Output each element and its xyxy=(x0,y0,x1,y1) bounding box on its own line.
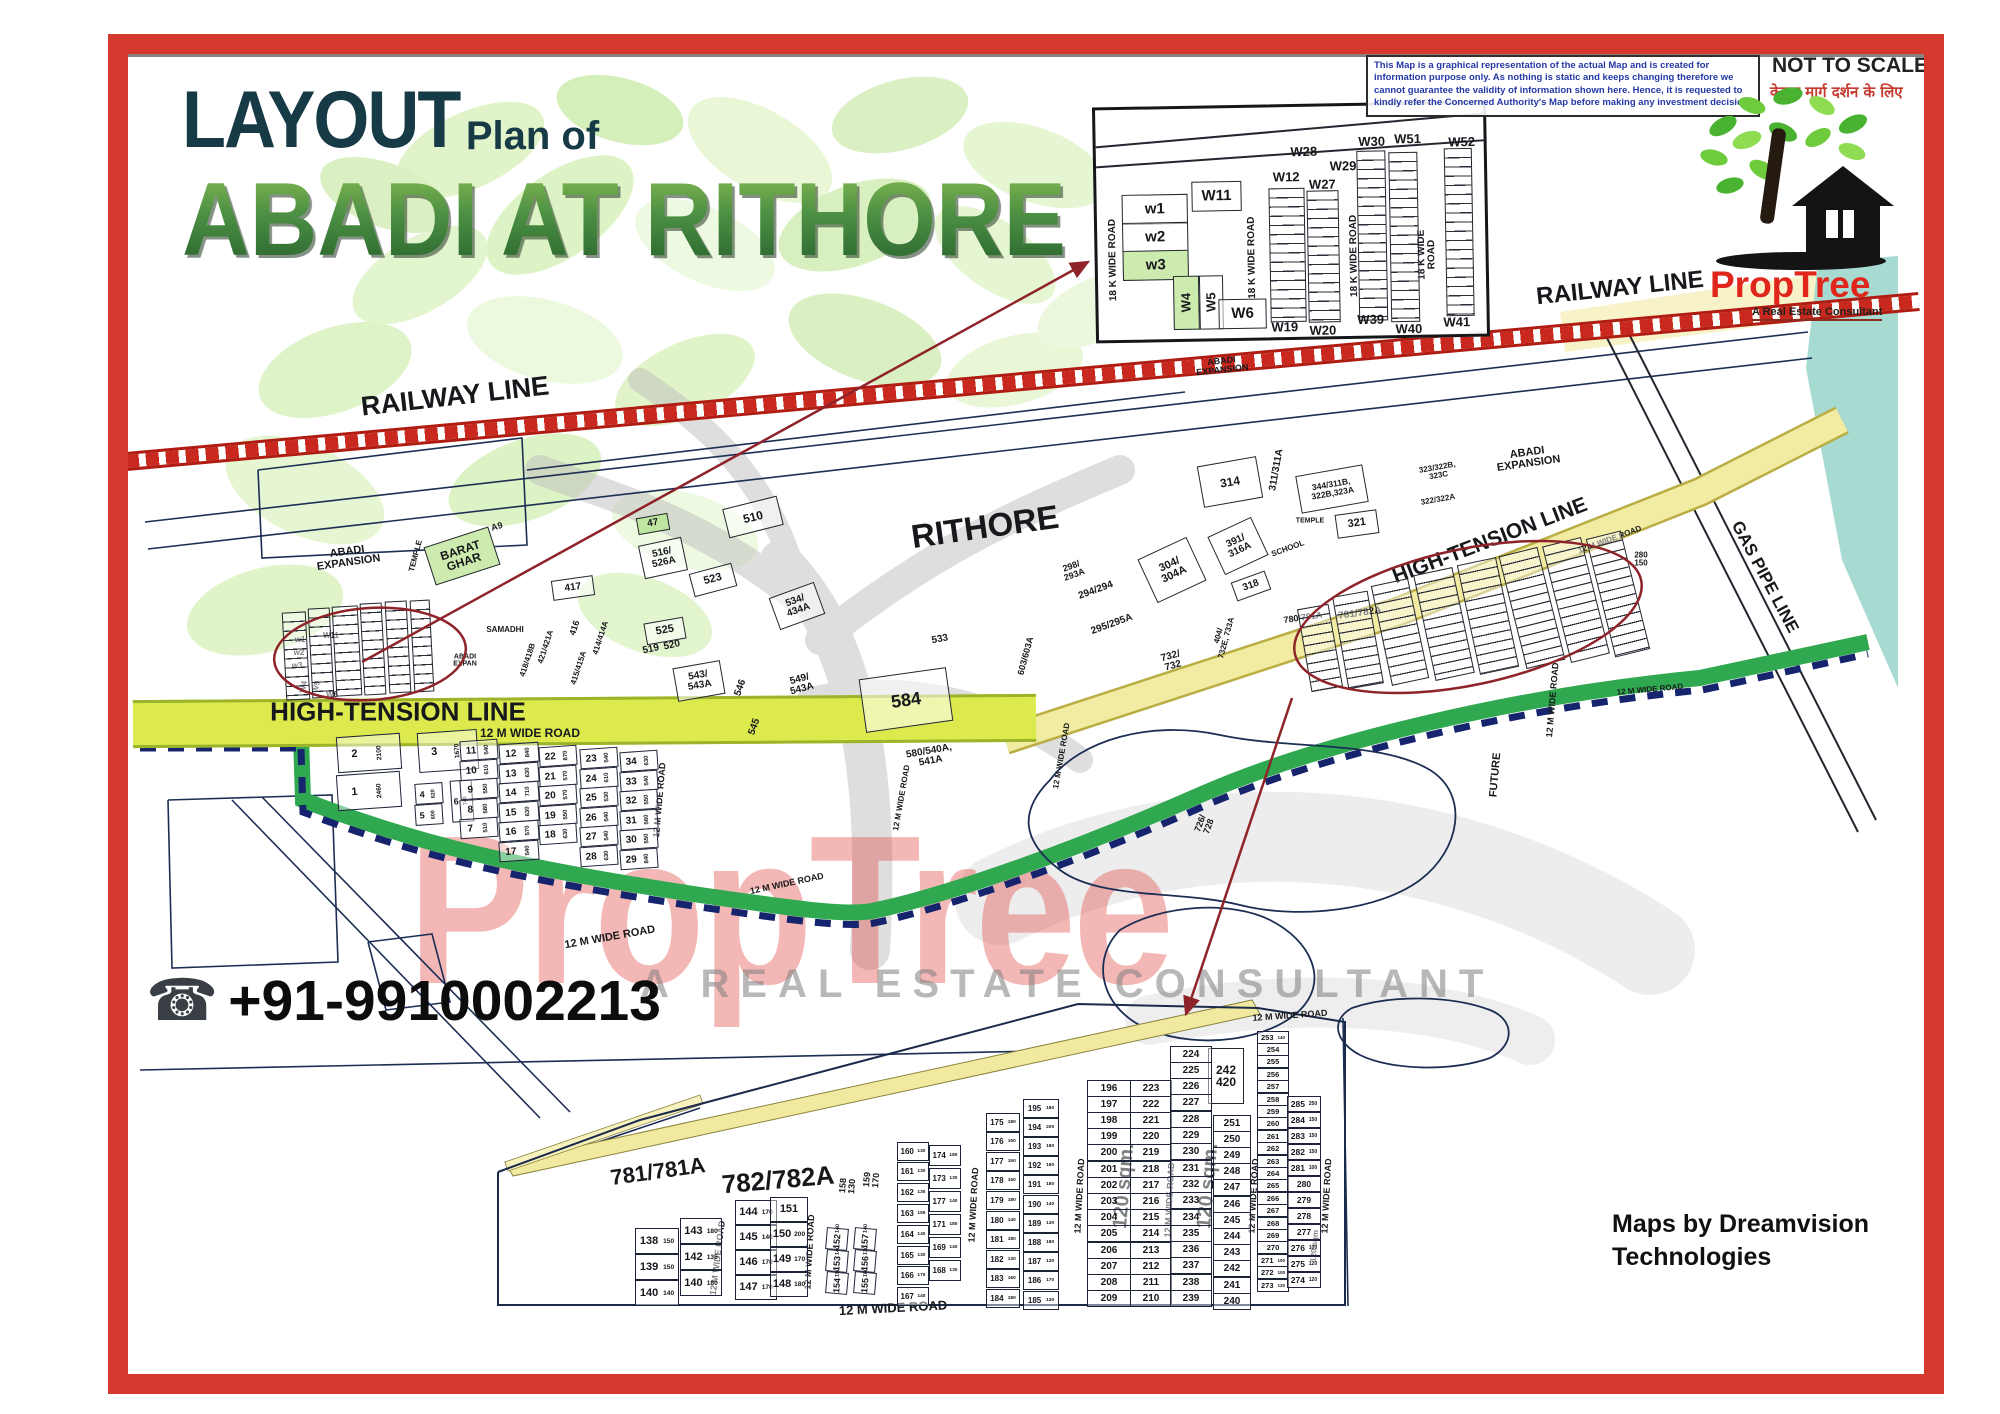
logo-leaf-icon xyxy=(1706,112,1740,141)
maps-credit: Maps by Dreamvision Technologies xyxy=(1612,1208,1932,1273)
phone-number: +91-9910002213 xyxy=(228,968,661,1034)
logo-tagline-text: A Real Estate Consultant xyxy=(1752,306,1882,321)
title-word-plan-of: Plan of xyxy=(466,114,599,159)
logo-leaf-icon xyxy=(1802,124,1834,151)
title-word-layout: LAYOUT xyxy=(182,74,459,166)
logo-leaf-icon xyxy=(1771,84,1804,107)
logo-house-window xyxy=(1826,210,1856,240)
map-title: LAYOUT Plan of ABADI AT RITHORE xyxy=(182,84,1164,272)
logo-leaf-icon xyxy=(1715,175,1746,197)
title-main: ABADI AT RITHORE xyxy=(182,168,1066,272)
contact-phone: ☎ +91-9910002213 xyxy=(146,968,661,1034)
proptree-logo: PropTree A Real Estate Consultant xyxy=(1688,88,1906,318)
logo-leaf-icon xyxy=(1736,94,1767,118)
logo-leaf-icon xyxy=(1730,127,1764,152)
not-to-scale-label: NOT TO SCALE xyxy=(1772,54,1928,78)
layout-map-page: { "header":{"word1":"LAYOUT","word2":"Pl… xyxy=(0,0,2000,1414)
phone-icon: ☎ xyxy=(146,972,218,1030)
logo-name-text: PropTree xyxy=(1710,264,1870,306)
logo-leaf-icon xyxy=(1836,140,1867,164)
logo-leaf-icon xyxy=(1699,147,1730,169)
logo-leaf-icon xyxy=(1836,110,1870,137)
logo-leaf-icon xyxy=(1806,92,1838,119)
